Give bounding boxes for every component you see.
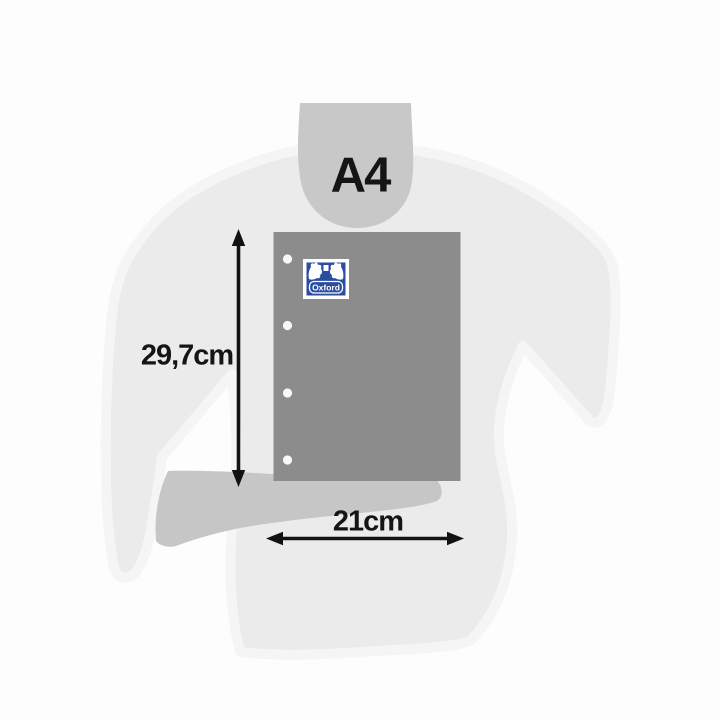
product-size-diagram: Oxford A4 29,7cm 21cm bbox=[0, 0, 720, 720]
paper-sheet bbox=[274, 232, 461, 481]
logo-shield-icon bbox=[324, 265, 329, 271]
width-dimension-label: 21cm bbox=[333, 508, 403, 537]
format-label: A4 bbox=[331, 152, 390, 201]
oxford-logo: Oxford bbox=[303, 259, 349, 299]
punch-hole bbox=[283, 388, 292, 397]
silhouette-illustration: Oxford bbox=[0, 0, 720, 720]
punch-hole bbox=[283, 254, 292, 263]
punch-hole bbox=[283, 321, 292, 330]
logo-wordmark: Oxford bbox=[312, 283, 340, 293]
height-dimension-label: 29,7cm bbox=[141, 342, 233, 371]
punch-hole bbox=[283, 455, 292, 464]
